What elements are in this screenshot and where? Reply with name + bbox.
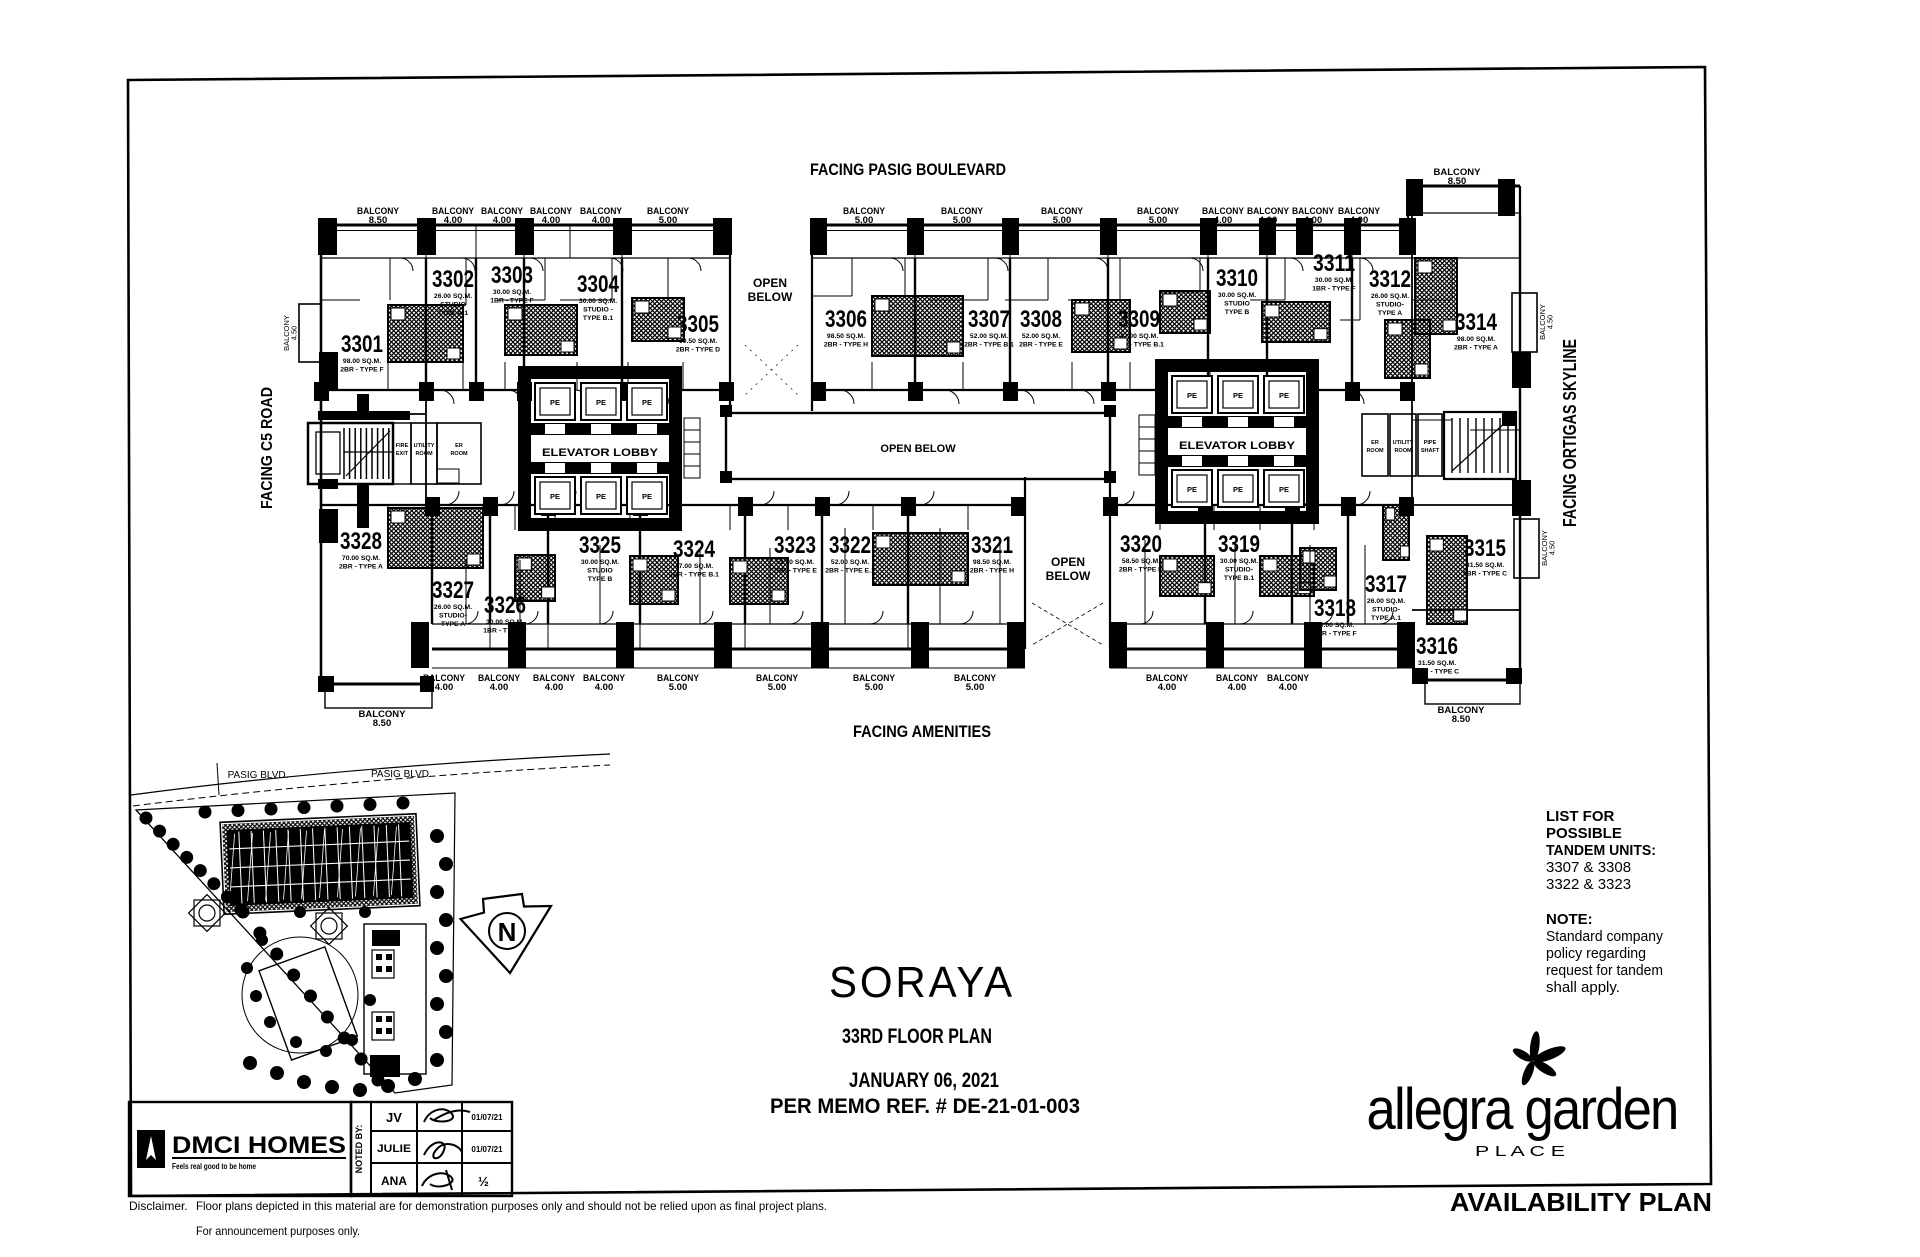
svg-text:JV: JV — [386, 1110, 402, 1125]
svg-text:3310: 3310 — [1216, 265, 1258, 292]
svg-text:5.00: 5.00 — [659, 215, 678, 226]
svg-text:3304: 3304 — [577, 271, 620, 298]
svg-text:PE: PE — [1279, 391, 1289, 400]
svg-text:26.00 SQ.M.: 26.00 SQ.M. — [1367, 598, 1405, 605]
svg-text:PASIG BLVD.: PASIG BLVD. — [228, 770, 289, 781]
svg-text:2BR - TYPE A: 2BR - TYPE A — [339, 564, 383, 571]
svg-text:BELOW: BELOW — [748, 290, 793, 304]
svg-text:UTILITY: UTILITY — [414, 443, 435, 449]
svg-text:Floor plans depicted in this m: Floor plans depicted in this material ar… — [196, 1199, 827, 1213]
svg-text:PE: PE — [642, 492, 652, 501]
svg-text:5.00: 5.00 — [1053, 215, 1072, 226]
svg-text:AVAILABILITY PLAN: AVAILABILITY PLAN — [1450, 1187, 1712, 1217]
svg-text:2BR - TYPE E.1: 2BR - TYPE E.1 — [825, 568, 875, 575]
svg-text:2BR - TYPE H: 2BR - TYPE H — [970, 568, 1014, 575]
svg-text:4.50: 4.50 — [1546, 315, 1555, 330]
svg-text:1BR - TYPE F: 1BR - TYPE F — [483, 628, 526, 635]
svg-text:52.00 SQ.M.: 52.00 SQ.M. — [1022, 333, 1060, 340]
svg-text:TYPE A.1: TYPE A.1 — [1371, 615, 1401, 622]
svg-text:OPEN: OPEN — [753, 276, 787, 290]
svg-text:ELEVATOR LOBBY: ELEVATOR LOBBY — [1179, 440, 1296, 452]
svg-text:3312: 3312 — [1369, 266, 1411, 293]
svg-text:ANA: ANA — [381, 1174, 407, 1188]
svg-text:26.00 SQ.M.: 26.00 SQ.M. — [1371, 293, 1409, 300]
svg-text:4.00: 4.00 — [592, 215, 611, 226]
svg-text:Disclaimer.: Disclaimer. — [129, 1199, 188, 1213]
svg-text:58.50 SQ.M.: 58.50 SQ.M. — [1122, 558, 1160, 565]
svg-text:8.50: 8.50 — [369, 215, 388, 226]
svg-text:TYPE B.1: TYPE B.1 — [583, 315, 613, 322]
svg-text:PE: PE — [550, 398, 560, 407]
svg-text:5.00: 5.00 — [669, 682, 688, 693]
svg-text:PE: PE — [596, 492, 606, 501]
svg-text:3320: 3320 — [1120, 531, 1162, 558]
svg-text:OPEN: OPEN — [1051, 555, 1085, 569]
svg-text:BELOW: BELOW — [1046, 569, 1091, 583]
svg-text:1BR - TYPE F: 1BR - TYPE F — [1312, 286, 1355, 293]
svg-text:UTILITY: UTILITY — [1393, 440, 1414, 446]
svg-text:LIST FOR: LIST FOR — [1546, 808, 1614, 825]
svg-text:1BR - TYPE F: 1BR - TYPE F — [1313, 631, 1356, 638]
svg-text:8.50: 8.50 — [373, 718, 392, 729]
svg-text:3315: 3315 — [1464, 535, 1506, 562]
svg-text:NOTED BY:: NOTED BY: — [354, 1125, 364, 1174]
svg-text:PE: PE — [1279, 485, 1289, 494]
svg-text:PE: PE — [1233, 391, 1243, 400]
svg-text:PE: PE — [1233, 485, 1243, 494]
svg-text:01/07/21: 01/07/21 — [471, 1113, 503, 1122]
svg-text:PER MEMO REF. # DE-21-01-003: PER MEMO REF. # DE-21-01-003 — [770, 1095, 1080, 1118]
svg-text:98.00 SQ.M.: 98.00 SQ.M. — [1457, 336, 1495, 343]
svg-text:4.00: 4.00 — [444, 215, 463, 226]
svg-text:ELEVATOR LOBBY: ELEVATOR LOBBY — [542, 447, 659, 459]
svg-text:2BR - TYPE E: 2BR - TYPE E — [1019, 342, 1063, 349]
svg-text:4.00: 4.00 — [545, 682, 564, 693]
svg-text:2BR - TYPE H: 2BR - TYPE H — [824, 342, 868, 349]
svg-text:STUDIO-: STUDIO- — [1376, 302, 1404, 309]
svg-text:4.00: 4.00 — [595, 682, 614, 693]
svg-text:ROOM: ROOM — [450, 451, 468, 457]
svg-text:STUDIO-: STUDIO- — [439, 613, 467, 620]
svg-text:4.00: 4.00 — [1350, 215, 1369, 226]
svg-text:2BR - TYPE A: 2BR - TYPE A — [1454, 345, 1498, 352]
svg-text:STUDIO-: STUDIO- — [1225, 567, 1253, 574]
svg-text:NOTE:: NOTE: — [1546, 911, 1593, 928]
svg-text:shall apply.: shall apply. — [1546, 979, 1620, 996]
svg-text:policy regarding: policy regarding — [1546, 945, 1646, 962]
svg-text:3307: 3307 — [968, 306, 1010, 333]
svg-text:33RD FLOOR PLAN: 33RD FLOOR PLAN — [842, 1025, 992, 1048]
svg-text:70.00 SQ.M.: 70.00 SQ.M. — [342, 555, 380, 562]
svg-text:5.00: 5.00 — [768, 682, 787, 693]
svg-text:30.00 SQ.M.: 30.00 SQ.M. — [1218, 292, 1256, 299]
svg-text:30.00 SQ.M.: 30.00 SQ.M. — [486, 619, 524, 626]
svg-text:TYPE A: TYPE A — [1378, 310, 1402, 317]
svg-text:3303: 3303 — [491, 262, 533, 289]
svg-text:2BR - TYPE D: 2BR - TYPE D — [676, 347, 720, 354]
svg-text:4.00: 4.00 — [1214, 215, 1233, 226]
svg-text:30.00 SQ.M.: 30.00 SQ.M. — [1220, 558, 1258, 565]
svg-text:TANDEM UNITS:: TANDEM UNITS: — [1546, 842, 1656, 859]
svg-text:5.00: 5.00 — [966, 682, 985, 693]
svg-text:FACING AMENITIES: FACING AMENITIES — [853, 722, 991, 741]
svg-text:47.00 SQ.M.: 47.00 SQ.M. — [675, 563, 713, 570]
svg-text:PE: PE — [550, 492, 560, 501]
svg-text:STUDIO -: STUDIO - — [583, 307, 613, 314]
svg-text:3322 & 3323: 3322 & 3323 — [1546, 876, 1631, 893]
svg-text:P L A C E: P L A C E — [1475, 1143, 1565, 1160]
svg-text:4.00: 4.00 — [1158, 682, 1177, 693]
svg-text:4.00: 4.00 — [1228, 682, 1247, 693]
svg-text:2BR - TYPE F: 2BR - TYPE F — [340, 367, 383, 374]
svg-text:FIRE: FIRE — [396, 443, 409, 449]
svg-text:TYPE B.1: TYPE B.1 — [1224, 575, 1254, 582]
svg-text:3314: 3314 — [1455, 309, 1498, 336]
svg-text:30.00 SQ.M.: 30.00 SQ.M. — [579, 298, 617, 305]
svg-text:For announcement purposes only: For announcement purposes only. — [196, 1224, 360, 1238]
svg-text:POSSIBLE: POSSIBLE — [1546, 825, 1622, 842]
svg-text:4.50: 4.50 — [290, 326, 299, 341]
svg-text:PIPE: PIPE — [1424, 440, 1437, 446]
svg-text:5.00: 5.00 — [855, 215, 874, 226]
svg-text:5.00: 5.00 — [1149, 215, 1168, 226]
svg-text:OPEN BELOW: OPEN BELOW — [880, 443, 956, 455]
svg-text:3301: 3301 — [341, 331, 383, 358]
svg-text:Standard company: Standard company — [1546, 928, 1663, 945]
svg-text:Feels real good to be home: Feels real good to be home — [172, 1162, 256, 1171]
svg-text:FACING ORTIGAS SKYLINE: FACING ORTIGAS SKYLINE — [1560, 339, 1580, 527]
svg-text:PASIG BLVD: PASIG BLVD — [371, 769, 429, 780]
svg-text:PE: PE — [1187, 391, 1197, 400]
svg-text:SORAYA: SORAYA — [829, 958, 1015, 1007]
svg-text:30.00 SQ.M.: 30.00 SQ.M. — [1316, 622, 1354, 629]
svg-text:4.00: 4.00 — [1279, 682, 1298, 693]
svg-text:TYPE A: TYPE A — [441, 621, 465, 628]
svg-text:allegra garden: allegra garden — [1367, 1077, 1678, 1142]
svg-text:3327: 3327 — [432, 577, 474, 604]
svg-text:ROOM: ROOM — [1394, 448, 1412, 454]
svg-text:2BR - TYPE D: 2BR - TYPE D — [1119, 567, 1163, 574]
svg-text:3319: 3319 — [1218, 531, 1260, 558]
svg-text:8.50: 8.50 — [1448, 176, 1467, 187]
svg-text:3316: 3316 — [1416, 633, 1458, 660]
svg-text:3311: 3311 — [1313, 250, 1355, 277]
svg-text:3318: 3318 — [1314, 595, 1356, 622]
svg-text:JANUARY 06, 2021: JANUARY 06, 2021 — [849, 1069, 999, 1092]
svg-text:3328: 3328 — [340, 528, 382, 555]
svg-text:4.00: 4.00 — [435, 682, 454, 693]
svg-text:ER: ER — [455, 443, 463, 449]
svg-text:STUDIO: STUDIO — [1224, 301, 1250, 308]
svg-text:3317: 3317 — [1365, 571, 1407, 598]
svg-text:1BR - TYPE C: 1BR - TYPE C — [1463, 571, 1507, 578]
svg-text:STUDIO-: STUDIO- — [1372, 607, 1400, 614]
svg-text:PE: PE — [642, 398, 652, 407]
svg-text:3323: 3323 — [774, 532, 816, 559]
svg-text:4.00: 4.00 — [1259, 215, 1278, 226]
svg-text:N: N — [498, 917, 517, 947]
svg-text:EXIT: EXIT — [396, 451, 409, 457]
svg-text:3302: 3302 — [432, 266, 474, 293]
svg-text:DMCI HOMES: DMCI HOMES — [172, 1132, 346, 1159]
svg-text:30.00 SQ.M.: 30.00 SQ.M. — [493, 289, 531, 296]
svg-text:FACING C5 ROAD: FACING C5 ROAD — [259, 387, 276, 509]
svg-text:ROOM: ROOM — [1366, 448, 1384, 454]
svg-text:3307 & 3308: 3307 & 3308 — [1546, 859, 1631, 876]
svg-text:request for tandem: request for tandem — [1546, 962, 1663, 979]
svg-text:TYPE B: TYPE B — [1225, 309, 1250, 316]
svg-text:52.00 SQ.M.: 52.00 SQ.M. — [831, 559, 869, 566]
svg-text:JULIE: JULIE — [377, 1143, 411, 1155]
svg-text:4.00: 4.00 — [542, 215, 561, 226]
svg-text:52.00 SQ.M.: 52.00 SQ.M. — [970, 333, 1008, 340]
svg-text:5.00: 5.00 — [865, 682, 884, 693]
svg-text:PE: PE — [1187, 485, 1197, 494]
svg-text:1BR - TYPE C: 1BR - TYPE C — [1415, 669, 1459, 676]
svg-text:31.50 SQ.M.: 31.50 SQ.M. — [1466, 562, 1504, 569]
svg-text:8.50: 8.50 — [1452, 714, 1471, 725]
svg-text:98.50 SQ.M.: 98.50 SQ.M. — [827, 333, 865, 340]
svg-text:4.00: 4.00 — [490, 682, 509, 693]
svg-text:4.00: 4.00 — [493, 215, 512, 226]
svg-text:5.00: 5.00 — [953, 215, 972, 226]
svg-text:3322: 3322 — [829, 532, 871, 559]
svg-text:4.00: 4.00 — [1304, 215, 1323, 226]
svg-text:01/07/21: 01/07/21 — [471, 1145, 503, 1154]
svg-text:98.50 SQ.M.: 98.50 SQ.M. — [973, 559, 1011, 566]
svg-text:SHAFT: SHAFT — [1421, 448, 1440, 454]
svg-text:31.50 SQ.M.: 31.50 SQ.M. — [1418, 660, 1456, 667]
svg-text:3306: 3306 — [825, 306, 867, 333]
svg-text:3324: 3324 — [673, 536, 716, 563]
svg-text:3321: 3321 — [971, 532, 1013, 559]
svg-text:30.00 SQ.M.: 30.00 SQ.M. — [1315, 277, 1353, 284]
svg-text:ER: ER — [1371, 440, 1379, 446]
svg-text:½: ½ — [478, 1174, 489, 1189]
svg-text:PE: PE — [596, 398, 606, 407]
svg-text:3308: 3308 — [1020, 306, 1062, 333]
svg-text:98.00 SQ.M.: 98.00 SQ.M. — [343, 358, 381, 365]
svg-text:1BR - TYPE F: 1BR - TYPE F — [490, 298, 533, 305]
svg-text:FACING PASIG BOULEVARD: FACING PASIG BOULEVARD — [810, 160, 1006, 179]
svg-text:ROOM: ROOM — [415, 451, 433, 457]
svg-text:2BR - TYPE B.1: 2BR - TYPE B.1 — [964, 342, 1014, 349]
svg-text:4.50: 4.50 — [1548, 541, 1557, 556]
